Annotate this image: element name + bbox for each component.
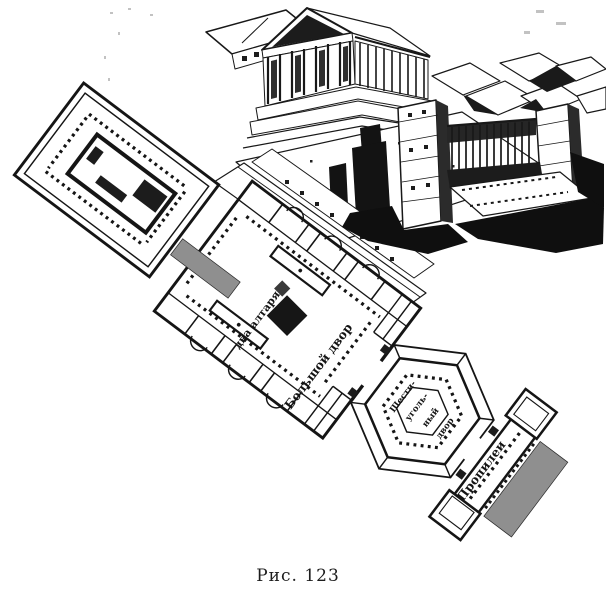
figure-123: два алтаря Большой двор Шести- уголь- ны… [0, 0, 606, 598]
figure-caption: Рис. 123 [0, 566, 596, 586]
perspective-roofs [432, 53, 606, 115]
figure-drawing: два алтаря Большой двор Шести- уголь- ны… [0, 0, 606, 598]
